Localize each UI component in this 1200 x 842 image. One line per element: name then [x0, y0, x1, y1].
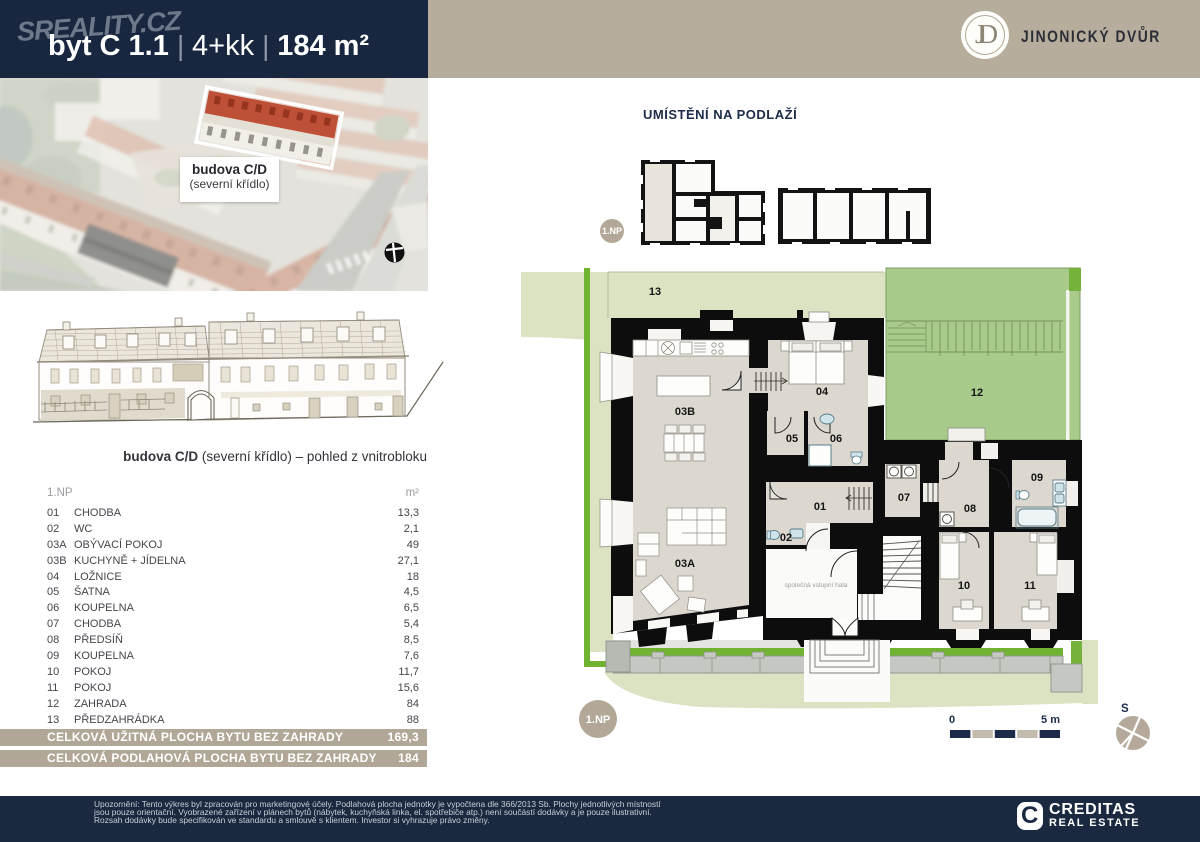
svg-text:06: 06 [830, 433, 842, 445]
svg-text:08: 08 [964, 503, 976, 515]
svg-text:01: 01 [814, 501, 826, 513]
svg-text:1.NP: 1.NP [586, 714, 610, 726]
svg-text:03A: 03A [675, 558, 695, 570]
svg-text:02: 02 [780, 532, 792, 544]
svg-text:11: 11 [1024, 580, 1036, 592]
svg-text:10: 10 [958, 580, 970, 592]
svg-text:03B: 03B [675, 406, 695, 418]
svg-text:07: 07 [898, 492, 910, 504]
svg-text:společná vstupní hala: společná vstupní hala [785, 582, 848, 589]
svg-text:09: 09 [1031, 472, 1043, 484]
svg-text:12: 12 [971, 387, 983, 399]
svg-text:5 m: 5 m [1041, 714, 1060, 726]
svg-text:0: 0 [949, 714, 955, 726]
svg-text:13: 13 [649, 286, 661, 298]
svg-text:05: 05 [786, 433, 798, 445]
svg-text:S: S [1121, 703, 1129, 715]
svg-text:04: 04 [816, 386, 829, 398]
